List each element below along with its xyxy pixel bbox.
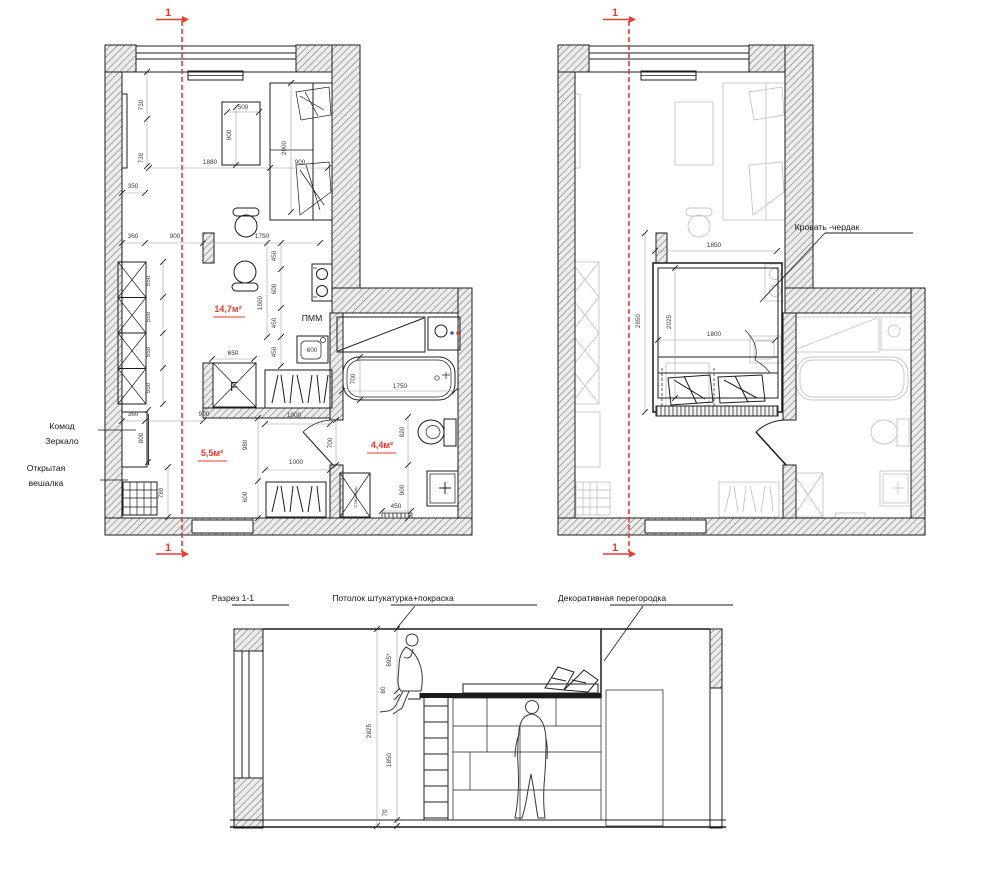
section-mark: 1 xyxy=(612,542,618,554)
wall xyxy=(105,45,136,72)
loft-platform xyxy=(420,693,601,698)
wall xyxy=(783,465,796,518)
entry-door xyxy=(645,520,706,533)
area-label: 14,7м² xyxy=(214,304,241,314)
wall xyxy=(203,408,335,418)
section-mark: 1 xyxy=(165,542,171,554)
dimension-text: 730 xyxy=(138,99,145,110)
dimension-text: 450 xyxy=(271,346,278,357)
sofa-bed xyxy=(270,83,332,220)
area-label: 5,5м² xyxy=(201,448,223,458)
tall-cabinet xyxy=(606,690,663,826)
dimension-text: 360 xyxy=(128,233,139,240)
dimension-text: 780 xyxy=(158,487,165,498)
dimension-text: 1800 xyxy=(707,331,722,338)
section-label: Потолок штукатурка+покраска xyxy=(332,593,454,603)
wall xyxy=(105,518,472,535)
section-label: Декоративная перегородка xyxy=(558,593,667,603)
dimension-text: 550 xyxy=(145,275,152,286)
furniture-label: ПММ xyxy=(302,313,323,323)
section-title: Разрез 1-1 xyxy=(212,593,254,603)
loft-bed-label: Кровать -чердак xyxy=(795,222,860,232)
wall xyxy=(332,45,360,288)
bath-counter xyxy=(337,317,425,352)
washbasin xyxy=(428,317,460,350)
wall xyxy=(234,629,263,651)
dimension-text: 450 xyxy=(391,503,402,510)
dimension-text: 1000 xyxy=(289,459,304,466)
hall-wardrobe xyxy=(266,482,326,517)
wall-stub xyxy=(656,233,667,263)
entry-door xyxy=(192,520,253,533)
wall xyxy=(710,629,722,688)
under-loft-storage xyxy=(453,698,601,820)
dimension-text: 895* xyxy=(386,653,393,667)
dimension-text: 600 xyxy=(271,283,278,294)
dimension-text: 500 xyxy=(238,104,249,111)
furniture-label: Открытая xyxy=(27,463,66,473)
dimension-text: 70 xyxy=(382,809,389,817)
dimension-text: 450 xyxy=(271,317,278,328)
dimension-text: 700 xyxy=(350,373,357,384)
dimension-text: 900 xyxy=(199,411,210,418)
dimension-text: 2000 xyxy=(281,140,288,155)
wall xyxy=(558,45,589,72)
dimension-text: 2825 xyxy=(366,723,373,738)
dimension-text: 450 xyxy=(271,250,278,261)
dimension-text: 700 xyxy=(327,437,334,448)
dimension-text: 1500 xyxy=(257,295,264,310)
dimension-text: 550 xyxy=(145,346,152,357)
section-mark: 1 xyxy=(165,7,171,19)
sliding-wardrobe xyxy=(265,370,332,408)
dimension-text: 1750 xyxy=(255,233,270,240)
floor-plan-left xyxy=(98,45,472,535)
wall xyxy=(783,313,796,420)
bath-sink xyxy=(427,471,458,506)
dimension-text: 900 xyxy=(170,233,181,240)
mirror xyxy=(122,94,127,168)
ceiling-leader xyxy=(397,606,415,628)
stove xyxy=(312,264,332,301)
drawing-canvas: 7307303505009001880200090036090017505505… xyxy=(0,0,1000,882)
dimension-text: 550 xyxy=(145,382,152,393)
dimension-text: 900 xyxy=(226,129,233,140)
dimension-text: 600 xyxy=(307,347,318,354)
dimension-text: 1000 xyxy=(287,412,302,419)
dimension-text: 360 xyxy=(128,411,139,418)
wall-stub xyxy=(203,233,214,263)
stool xyxy=(232,261,258,291)
dimension-text: 2650 xyxy=(635,313,642,328)
dimension-text: 980 xyxy=(242,439,249,450)
dimension-text: 80 xyxy=(380,686,387,694)
dimension-text: 1850 xyxy=(707,242,722,249)
dimension-text: 600 xyxy=(242,491,249,502)
pillows xyxy=(545,667,598,692)
sitting-person xyxy=(380,634,422,714)
floor-plan-right xyxy=(558,45,925,535)
loft-ladder-edge xyxy=(656,406,778,416)
dimension-text: 800 xyxy=(138,432,145,443)
furniture-label: вешалка xyxy=(29,478,64,488)
section-mark: 1 xyxy=(612,7,618,19)
bathroom-door xyxy=(756,420,786,465)
dimension-text: 1850 xyxy=(386,752,393,767)
partition-leader xyxy=(604,606,643,661)
furniture-label: F xyxy=(230,379,238,394)
section-view xyxy=(230,605,733,828)
wall xyxy=(785,45,813,288)
dimension-text: 1750 xyxy=(393,383,408,390)
dimension-text: 650 xyxy=(228,350,239,357)
dimension-text: 730 xyxy=(138,152,145,163)
dimension-text: 820 xyxy=(399,426,406,437)
wall xyxy=(558,518,925,535)
furniture-label: Зеркало xyxy=(45,436,79,446)
area-label: 4,4м² xyxy=(371,440,393,450)
wall xyxy=(332,288,472,313)
wall xyxy=(558,45,575,535)
mattress xyxy=(463,684,598,693)
open-hanger xyxy=(123,482,157,515)
toilet xyxy=(418,419,456,446)
dimension-text: 2025 xyxy=(666,314,673,329)
loft-bed xyxy=(653,263,782,416)
dimension-text: 1880 xyxy=(203,159,218,166)
apartment-plan-drawing: 7307303505009001880200090036090017505505… xyxy=(0,0,1000,882)
dimension-text: 350 xyxy=(128,183,139,190)
dimension-text: 900 xyxy=(399,484,406,495)
dimension-text: 550 xyxy=(145,311,152,322)
furniture-label: Комод xyxy=(49,421,74,431)
ladder xyxy=(424,698,448,820)
wall xyxy=(785,288,925,313)
wall xyxy=(911,288,925,535)
dimension-text: 900 xyxy=(295,159,306,166)
wall xyxy=(203,363,213,408)
wall xyxy=(105,45,122,535)
furniture-label: Стир.маш xyxy=(353,486,358,508)
step-mat xyxy=(382,513,412,518)
